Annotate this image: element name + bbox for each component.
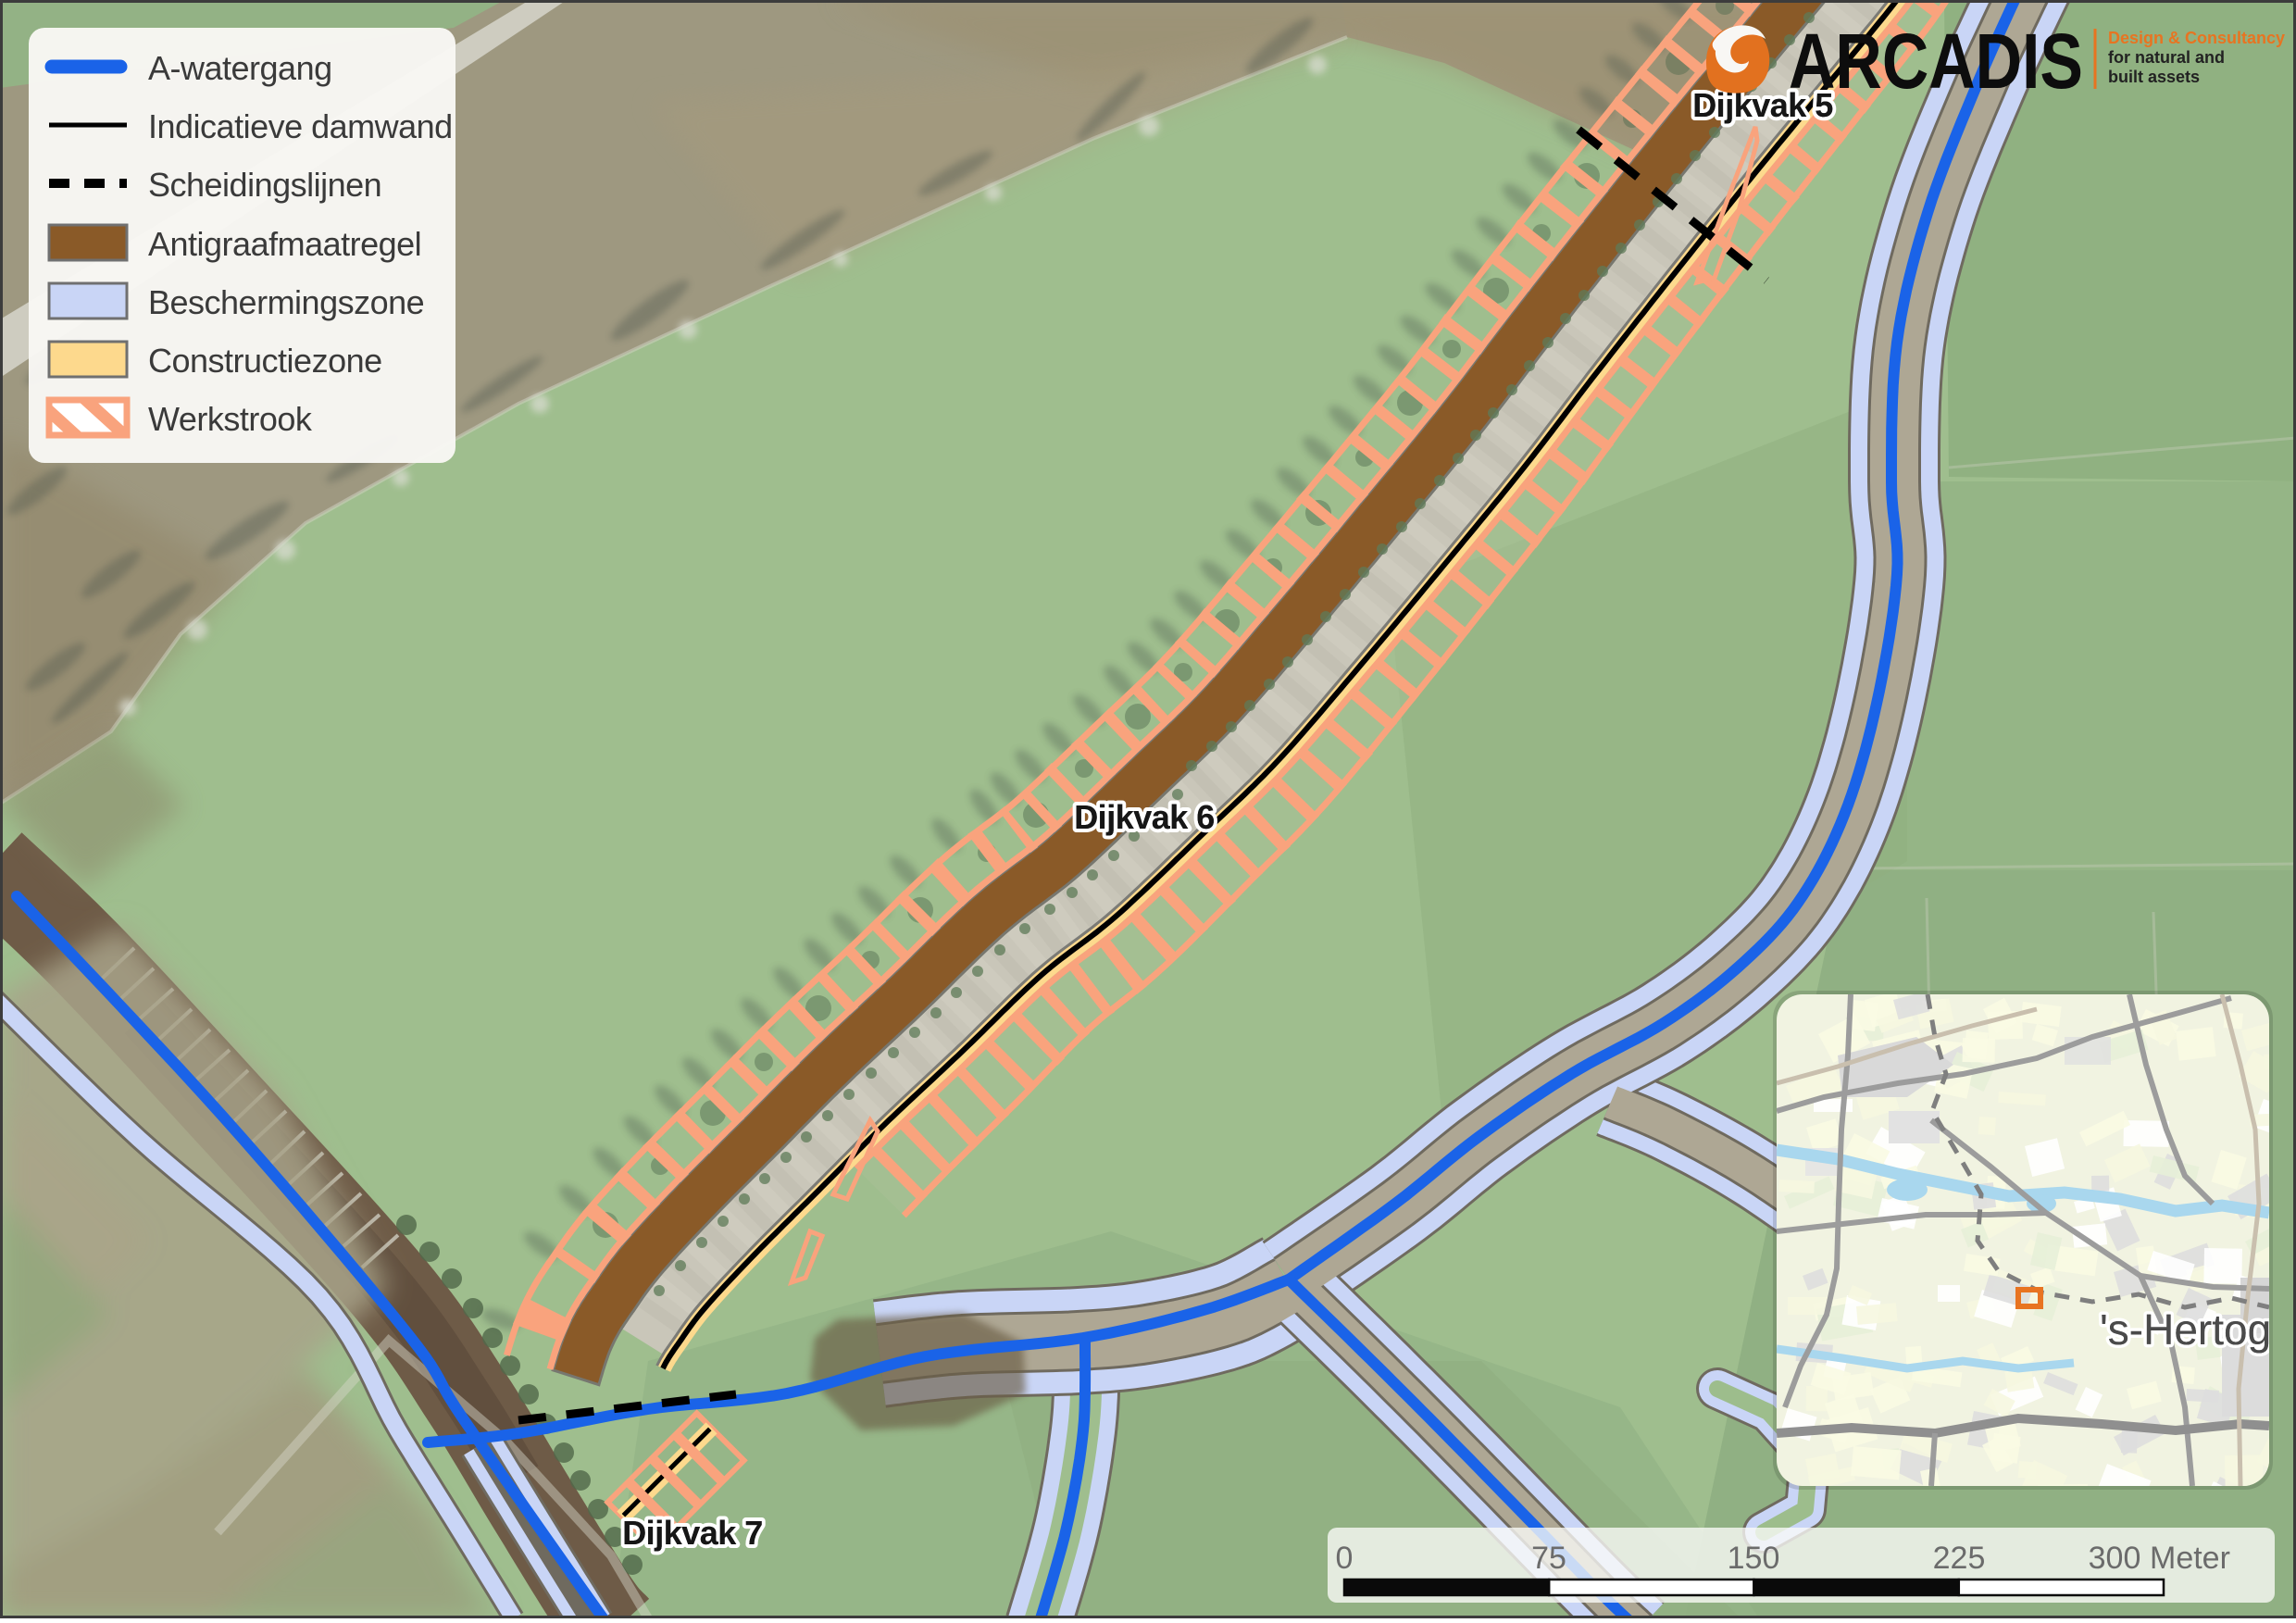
svg-text:ARCADIS: ARCADIS (1789, 18, 2083, 105)
svg-text:Meter: Meter (2150, 1541, 2230, 1576)
svg-text:Dijkvak 7: Dijkvak 7 (622, 1514, 763, 1552)
svg-text:Scheidingslijnen: Scheidingslijnen (148, 166, 381, 204)
svg-text:built assets: built assets (2108, 68, 2200, 86)
svg-text:for natural and: for natural and (2108, 48, 2225, 67)
svg-text:Indicatieve damwand: Indicatieve damwand (148, 107, 453, 145)
svg-text:225: 225 (1933, 1541, 1986, 1576)
svg-text:Werkstrook: Werkstrook (148, 400, 313, 438)
svg-text:0: 0 (1336, 1541, 1354, 1576)
svg-text:Beschermingszone: Beschermingszone (148, 283, 424, 321)
svg-text:Constructiezone: Constructiezone (148, 342, 382, 380)
svg-text:150: 150 (1728, 1541, 1780, 1576)
svg-text:Antigraafmaatregel: Antigraafmaatregel (148, 225, 421, 263)
svg-text:Dijkvak 6: Dijkvak 6 (1074, 798, 1215, 836)
svg-text:300: 300 (2089, 1541, 2141, 1576)
svg-text:75: 75 (1531, 1541, 1566, 1576)
svg-text:Design & Consultancy: Design & Consultancy (2108, 29, 2285, 47)
svg-text:A-watergang: A-watergang (148, 49, 332, 87)
svg-text:'s-Hertog: 's-Hertog (2100, 1305, 2271, 1354)
